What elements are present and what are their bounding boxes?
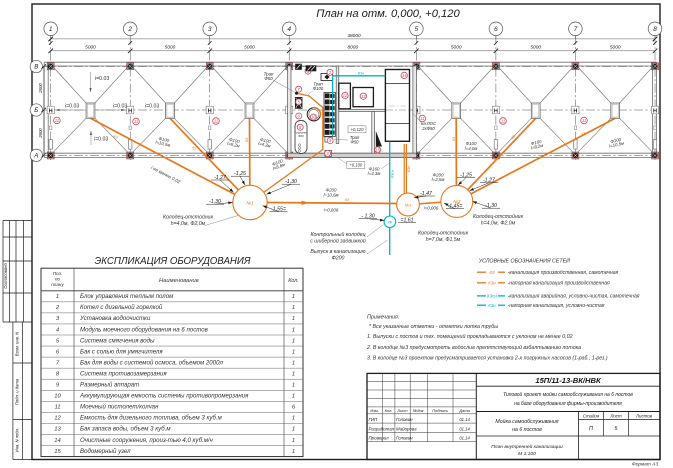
svg-text:1: 1 — [292, 394, 295, 400]
svg-text:i=0,006: i=0,006 — [324, 208, 339, 213]
svg-text:Система смягчения воды: Система смягчения воды — [80, 337, 155, 344]
svg-text:H: H — [208, 108, 212, 114]
svg-text:4: 4 — [287, 26, 291, 33]
svg-text:1: 1 — [292, 360, 295, 366]
svg-text:УСЛОВНЫЕ ОБОЗНАЧЕНИЯ СЕТЕЙ: УСЛОВНЫЕ ОБОЗНАЧЕНИЯ СЕТЕЙ — [479, 257, 570, 265]
svg-text:Установка водоочистки: Установка водоочистки — [79, 315, 151, 322]
svg-text:-канализация аварийная, условн: -канализация аварийная, условно-чистая, … — [508, 293, 640, 300]
svg-text:5000: 5000 — [451, 45, 462, 51]
svg-text:Бак запаса воды, объем 3 куб.м: Бак запаса воды, объем 3 куб.м — [80, 426, 171, 433]
svg-text:Ф50: Ф50 — [351, 140, 360, 145]
svg-text:Размерный аппарат: Размерный аппарат — [80, 382, 139, 389]
svg-text:i=0.03: i=0.03 — [94, 137, 108, 143]
svg-text:5: 5 — [415, 26, 419, 33]
svg-text:П: П — [589, 426, 593, 432]
svg-text:Система противозамерзания: Система противозамерзания — [80, 370, 167, 377]
svg-text:М 1:100: М 1:100 — [518, 451, 536, 457]
svg-text:К3: К3 — [489, 270, 495, 275]
svg-text:Разработал: Разработал — [369, 426, 395, 431]
svg-text:5000: 5000 — [85, 45, 96, 51]
svg-text:Майорова: Майорова — [396, 426, 417, 431]
svg-text:Кол.: Кол. — [288, 278, 299, 284]
svg-text:11: 11 — [582, 118, 586, 123]
svg-text:6: 6 — [494, 26, 498, 33]
svg-text:1: 1 — [292, 294, 295, 300]
svg-text:10: 10 — [311, 115, 316, 120]
svg-text:11: 11 — [55, 118, 59, 123]
svg-text:2. В колодце №3 предусмотреть: 2. В колодце №3 предусмотреть водослив п… — [366, 344, 581, 351]
svg-text:Аккумулирующая емкость системы: Аккумулирующая емкость системы противопр… — [79, 393, 249, 400]
svg-text:1: 1 — [56, 294, 59, 300]
svg-text:1: 1 — [292, 449, 295, 455]
svg-text:38000: 38000 — [347, 33, 361, 39]
svg-text:Примечания:: Примечания: — [367, 315, 400, 321]
svg-text:01.14: 01.14 — [459, 417, 470, 422]
svg-text:Изм.: Изм. — [370, 408, 379, 413]
svg-text:8000: 8000 — [347, 45, 358, 51]
svg-text:Инв. N подл.: Инв. N подл. — [15, 428, 20, 452]
svg-text:Бак с солью для умягчителя: Бак с солью для умягчителя — [80, 348, 163, 355]
svg-text:План внутренней канализации: План внутренней канализации — [491, 443, 563, 450]
svg-text:Кол.: Кол. — [385, 408, 393, 413]
svg-text:14: 14 — [54, 438, 61, 444]
svg-text:№док.: №док. — [413, 408, 425, 413]
svg-text:Типовой проект мойки самообслу: Типовой проект мойки самообслуживания на… — [503, 391, 633, 398]
svg-text:12: 12 — [54, 416, 61, 422]
svg-text:Взам. инв. N: Взам. инв. N — [15, 331, 20, 356]
svg-text:ГИП: ГИП — [369, 417, 379, 422]
svg-text:5000: 5000 — [530, 45, 541, 51]
svg-text:Подп. и дата: Подп. и дата — [15, 378, 20, 405]
svg-text:l=10,6м: l=10,6м — [323, 193, 338, 198]
svg-text:1: 1 — [49, 26, 53, 33]
svg-text:Проверил: Проверил — [369, 436, 390, 441]
svg-text:Колодец-отстойник: Колодец-отстойник — [163, 214, 214, 221]
svg-text:В: В — [34, 64, 38, 71]
svg-text:H: H — [573, 108, 577, 114]
svg-text:Ф50: Ф50 — [298, 134, 304, 138]
svg-text:Б: Б — [34, 107, 38, 114]
svg-text:по: по — [55, 277, 61, 282]
svg-text:l=4,0м: l=4,0м — [465, 146, 478, 151]
svg-text:1. Выпуски с постов и тех. пом: 1. Выпуски с постов и тех. помещений про… — [367, 333, 573, 340]
svg-text:К3н: К3н — [488, 280, 496, 285]
svg-text:1: 1 — [292, 305, 295, 311]
svg-text:1: 1 — [292, 327, 295, 333]
svg-text:i=0,006: i=0,006 — [424, 206, 439, 211]
svg-text:-напорная канализация производ: -напорная канализация производственная — [508, 281, 611, 287]
svg-text:7: 7 — [574, 26, 578, 33]
svg-text:А: А — [33, 153, 38, 160]
svg-text:Мойка самообслуживания: Мойка самообслуживания — [495, 418, 558, 425]
svg-text:Поз.: Поз. — [53, 271, 62, 276]
svg-text:Дата: Дата — [458, 408, 470, 413]
svg-text:h=7,0м, Ф1,5м: h=7,0м, Ф1,5м — [426, 237, 461, 243]
svg-text:Колодец-отстойник: Колодец-отстойник — [418, 230, 469, 237]
svg-text:1: 1 — [292, 316, 295, 322]
svg-text:Ф50: Ф50 — [264, 76, 273, 81]
svg-text:КК: КК — [388, 220, 393, 225]
svg-text:i=0.03: i=0.03 — [113, 104, 127, 110]
svg-text:3: 3 — [208, 26, 212, 33]
svg-text:Наименование: Наименование — [159, 278, 200, 284]
svg-text:на 6 постов: на 6 постов — [512, 427, 542, 433]
svg-text:H: H — [128, 108, 132, 114]
svg-text:i=0.03: i=0.03 — [95, 76, 109, 82]
svg-text:Формат А3: Формат А3 — [632, 462, 659, 468]
svg-text:* Все указанные отметки - отме: * Все указанные отметки - отметки лотка … — [369, 324, 498, 330]
svg-text:11: 11 — [501, 119, 505, 124]
svg-text:2: 2 — [127, 26, 132, 33]
svg-text:плану: плану — [51, 282, 64, 287]
svg-text:15: 15 — [375, 147, 380, 152]
svg-text:01.14: 01.14 — [459, 426, 470, 431]
svg-text:Выпуск в канализацию: Выпуск в канализацию — [310, 249, 365, 255]
svg-text:2600: 2600 — [38, 83, 43, 94]
svg-text:План на отм. 0,000, +0,120: План на отм. 0,000, +0,120 — [316, 8, 460, 20]
svg-text:Ф100: Ф100 — [313, 86, 324, 91]
svg-text:на базе оборудования фирмы-про: на базе оборудования фирмы-производителя — [514, 401, 622, 407]
svg-text:11: 11 — [214, 119, 218, 124]
svg-text:H: H — [49, 108, 53, 114]
svg-text:H: H — [653, 108, 657, 114]
svg-text:1: 1 — [292, 371, 295, 377]
svg-text:H: H — [494, 108, 498, 114]
svg-text:+0,120: +0,120 — [351, 127, 365, 132]
svg-text:15П/11-13-ВК/НВК: 15П/11-13-ВК/НВК — [535, 376, 602, 385]
svg-text:+0,100: +0,100 — [349, 163, 363, 168]
svg-text:-канализация производственная,: -канализация производственная, самотечна… — [508, 270, 619, 276]
svg-text:13: 13 — [54, 427, 61, 433]
svg-text:К3н: К3н — [407, 165, 411, 172]
svg-text:12: 12 — [343, 93, 348, 98]
svg-text:Ф200: Ф200 — [332, 255, 345, 261]
svg-text:Модуль моечного оборудования н: Модуль моечного оборудования на 6 постов — [80, 326, 208, 333]
svg-text:5000: 5000 — [610, 45, 621, 51]
svg-text:Лист: Лист — [396, 408, 408, 413]
svg-text:13: 13 — [361, 94, 366, 99]
svg-text:Очистные сооружения, произ-тью: Очистные сооружения, произ-тью 4,0 куб.м… — [80, 437, 214, 444]
svg-text:h=4,0м, Ф2,0м: h=4,0м, Ф2,0м — [171, 221, 206, 227]
svg-text:1: 1 — [292, 416, 295, 422]
svg-text:01.14: 01.14 — [459, 436, 470, 441]
svg-text:10: 10 — [54, 394, 61, 400]
svg-text:2600: 2600 — [38, 128, 43, 139]
svg-text:К3н: К3н — [358, 71, 365, 75]
svg-text:Водомерный узел: Водомерный узел — [80, 448, 131, 455]
svg-text:14: 14 — [402, 73, 407, 78]
svg-text:Котел с дизельной горелкой: Котел с дизельной горелкой — [80, 304, 163, 311]
svg-text:1: 1 — [292, 338, 295, 344]
svg-text:5000: 5000 — [244, 45, 255, 51]
svg-text:8: 8 — [653, 26, 657, 33]
svg-text:i=0.03: i=0.03 — [145, 104, 159, 110]
svg-text:ЭКСПЛИКАЦИЯ ОБОРУДОВАНИЯ: ЭКСПЛИКАЦИЯ ОБОРУДОВАНИЯ — [95, 256, 251, 267]
svg-text:1: 1 — [292, 427, 295, 433]
svg-text:i=0.03: i=0.03 — [65, 104, 79, 110]
svg-text:3. В колодце №3 проектом преду: 3. В колодце №3 проектом предусматривает… — [367, 355, 608, 361]
svg-text:h=4,0м, Ф2,0м: h=4,0м, Ф2,0м — [481, 220, 516, 226]
svg-text:Колодец-отстойник: Колодец-отстойник — [473, 213, 524, 220]
svg-text:К3сн: К3сн — [487, 294, 497, 299]
svg-text:К3н: К3н — [488, 303, 496, 308]
svg-text:Листов: Листов — [635, 414, 653, 419]
svg-text:11: 11 — [134, 119, 138, 124]
svg-text:Головин: Головин — [396, 417, 413, 422]
svg-text:1: 1 — [292, 438, 295, 444]
svg-text:1: 1 — [292, 383, 295, 389]
svg-text:Емкость для дизельного топлива: Емкость для дизельного топлива, объем 3 … — [80, 415, 223, 422]
svg-text:Лист: Лист — [609, 414, 622, 419]
svg-text:№3: №3 — [405, 202, 412, 207]
svg-text:-напорная канализация, условно: -напорная канализация, условно-чистая — [508, 303, 605, 309]
svg-text:Бак для воды с системой осмоса: Бак для воды с системой осмоса, объемом … — [80, 359, 223, 366]
svg-text:11: 11 — [54, 405, 60, 411]
svg-text:5000: 5000 — [165, 45, 176, 51]
svg-text:l=2,5м: l=2,5м — [432, 177, 445, 182]
svg-text:Контрольный колодец: Контрольный колодец — [310, 231, 365, 238]
svg-text:1: 1 — [292, 349, 295, 355]
svg-text:К3сн: К3сн — [390, 169, 394, 178]
svg-text:15: 15 — [54, 449, 61, 455]
svg-text:Головин: Головин — [396, 436, 413, 441]
svg-text:№1: №1 — [246, 200, 254, 205]
svg-text:2хФ50: 2хФ50 — [421, 126, 435, 131]
svg-text:Моечный пистолет/колчан: Моечный пистолет/колчан — [80, 404, 159, 411]
svg-text:2: 2 — [55, 305, 60, 311]
svg-text:l=4,3м: l=4,3м — [368, 171, 381, 176]
svg-text:Согласовано: Согласовано — [3, 263, 8, 289]
svg-text:Подпись: Подпись — [432, 408, 448, 413]
svg-text:с шиберной задвижкой: с шиберной задвижкой — [310, 237, 366, 244]
svg-text:Блок управления теплым полом: Блок управления теплым полом — [80, 293, 174, 300]
svg-text:Стадия: Стадия — [583, 414, 600, 419]
